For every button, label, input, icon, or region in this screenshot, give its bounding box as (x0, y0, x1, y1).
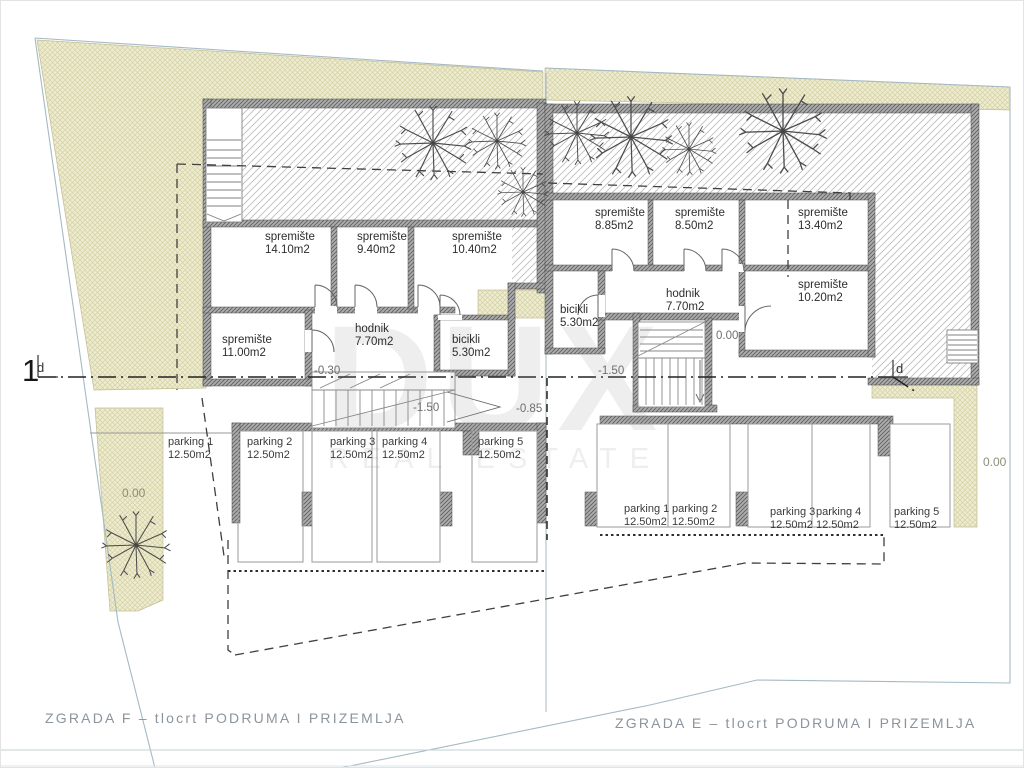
garden-f (242, 103, 545, 290)
parking-label-area: 12.50m2 (330, 449, 373, 461)
site-level-label: 0.00 (983, 455, 1007, 469)
terrain-southwest-strip (95, 408, 163, 611)
room-label-area: 8.50m2 (675, 220, 713, 232)
stair-e-external (947, 330, 978, 363)
parking-label-area: 12.50m2 (672, 516, 715, 528)
title-zgrada-f: ZGRADA F – tlocrt PODRUMA I PRIZEMLJA (45, 710, 406, 726)
title-zgrada-e: ZGRADA E – tlocrt PODRUMA I PRIZEMLJA (615, 715, 976, 731)
room-label-name: hodnik (355, 323, 389, 335)
room-label-name: spremište (798, 279, 848, 291)
room-label-name: hodnik (666, 288, 700, 300)
room-label-name: spremište (265, 231, 315, 243)
parking-label-name: parking 1 (624, 503, 669, 515)
section-marker-letter: d (896, 361, 903, 376)
parking-label-name: parking 4 (816, 506, 861, 518)
room-label-name: spremište (222, 334, 272, 346)
room-label-area: 14.10m2 (265, 244, 310, 256)
level-label: -0.30 (314, 365, 340, 377)
room-label-name: bicikli (560, 304, 588, 316)
room-label-area: 10.40m2 (452, 244, 497, 256)
parking-label-name: parking 2 (672, 503, 717, 515)
parking-label-name: parking 2 (247, 436, 292, 448)
parking-label-area: 12.50m2 (770, 519, 813, 531)
level-label: -1.50 (413, 402, 439, 414)
site-level-label: 0.00 (122, 486, 146, 500)
dotted-garage-lines (228, 535, 886, 571)
room-label-area: 10.20m2 (798, 292, 843, 304)
room-label-name: spremište (452, 231, 502, 243)
parking-label-area: 12.50m2 (478, 449, 521, 461)
level-label: 0.00 (716, 330, 738, 342)
parking-label-name: parking 3 (770, 506, 815, 518)
terrain-north-strip (545, 68, 1010, 110)
room-label-area: 8.85m2 (595, 220, 633, 232)
room-label-area: 11.00m2 (222, 347, 266, 359)
room-label-name: spremište (595, 207, 645, 219)
parking-label-name: parking 1 (168, 436, 213, 448)
level-label: -0.85 (516, 403, 542, 415)
parking-label-area: 12.50m2 (894, 519, 937, 531)
floor-plan-drawing: DUX REAL ESTATE spremište 14.10m2 spremi… (0, 0, 1024, 768)
parking-label-name: parking 5 (478, 436, 523, 448)
parking-label-name: parking 3 (330, 436, 375, 448)
room-label-area: 5.30m2 (452, 347, 490, 359)
parking-label-area: 12.50m2 (247, 449, 290, 461)
parking-label-area: 12.50m2 (816, 519, 859, 531)
section-marker-letter: d (37, 360, 44, 375)
room-label-name: bicikli (452, 334, 480, 346)
level-label: -1.50 (598, 365, 624, 377)
parking-label-name: parking 4 (382, 436, 427, 448)
room-label-area: 5.30m2 (560, 317, 598, 329)
parking-label-area: 12.50m2 (382, 449, 425, 461)
parking-label-area: 12.50m2 (168, 449, 211, 461)
room-label-area: 7.70m2 (666, 301, 704, 313)
parking-label-name: parking 5 (894, 506, 939, 518)
room-label-name: spremište (798, 207, 848, 219)
room-label-name: spremište (675, 207, 725, 219)
room-label-area: 9.40m2 (357, 244, 395, 256)
room-label-area: 13.40m2 (798, 220, 843, 232)
parking-label-area: 12.50m2 (624, 516, 667, 528)
floor-plan-page: DUX REAL ESTATE spremište 14.10m2 spremi… (0, 0, 1024, 768)
room-label-area: 7.70m2 (355, 336, 393, 348)
room-label-name: spremište (357, 231, 407, 243)
